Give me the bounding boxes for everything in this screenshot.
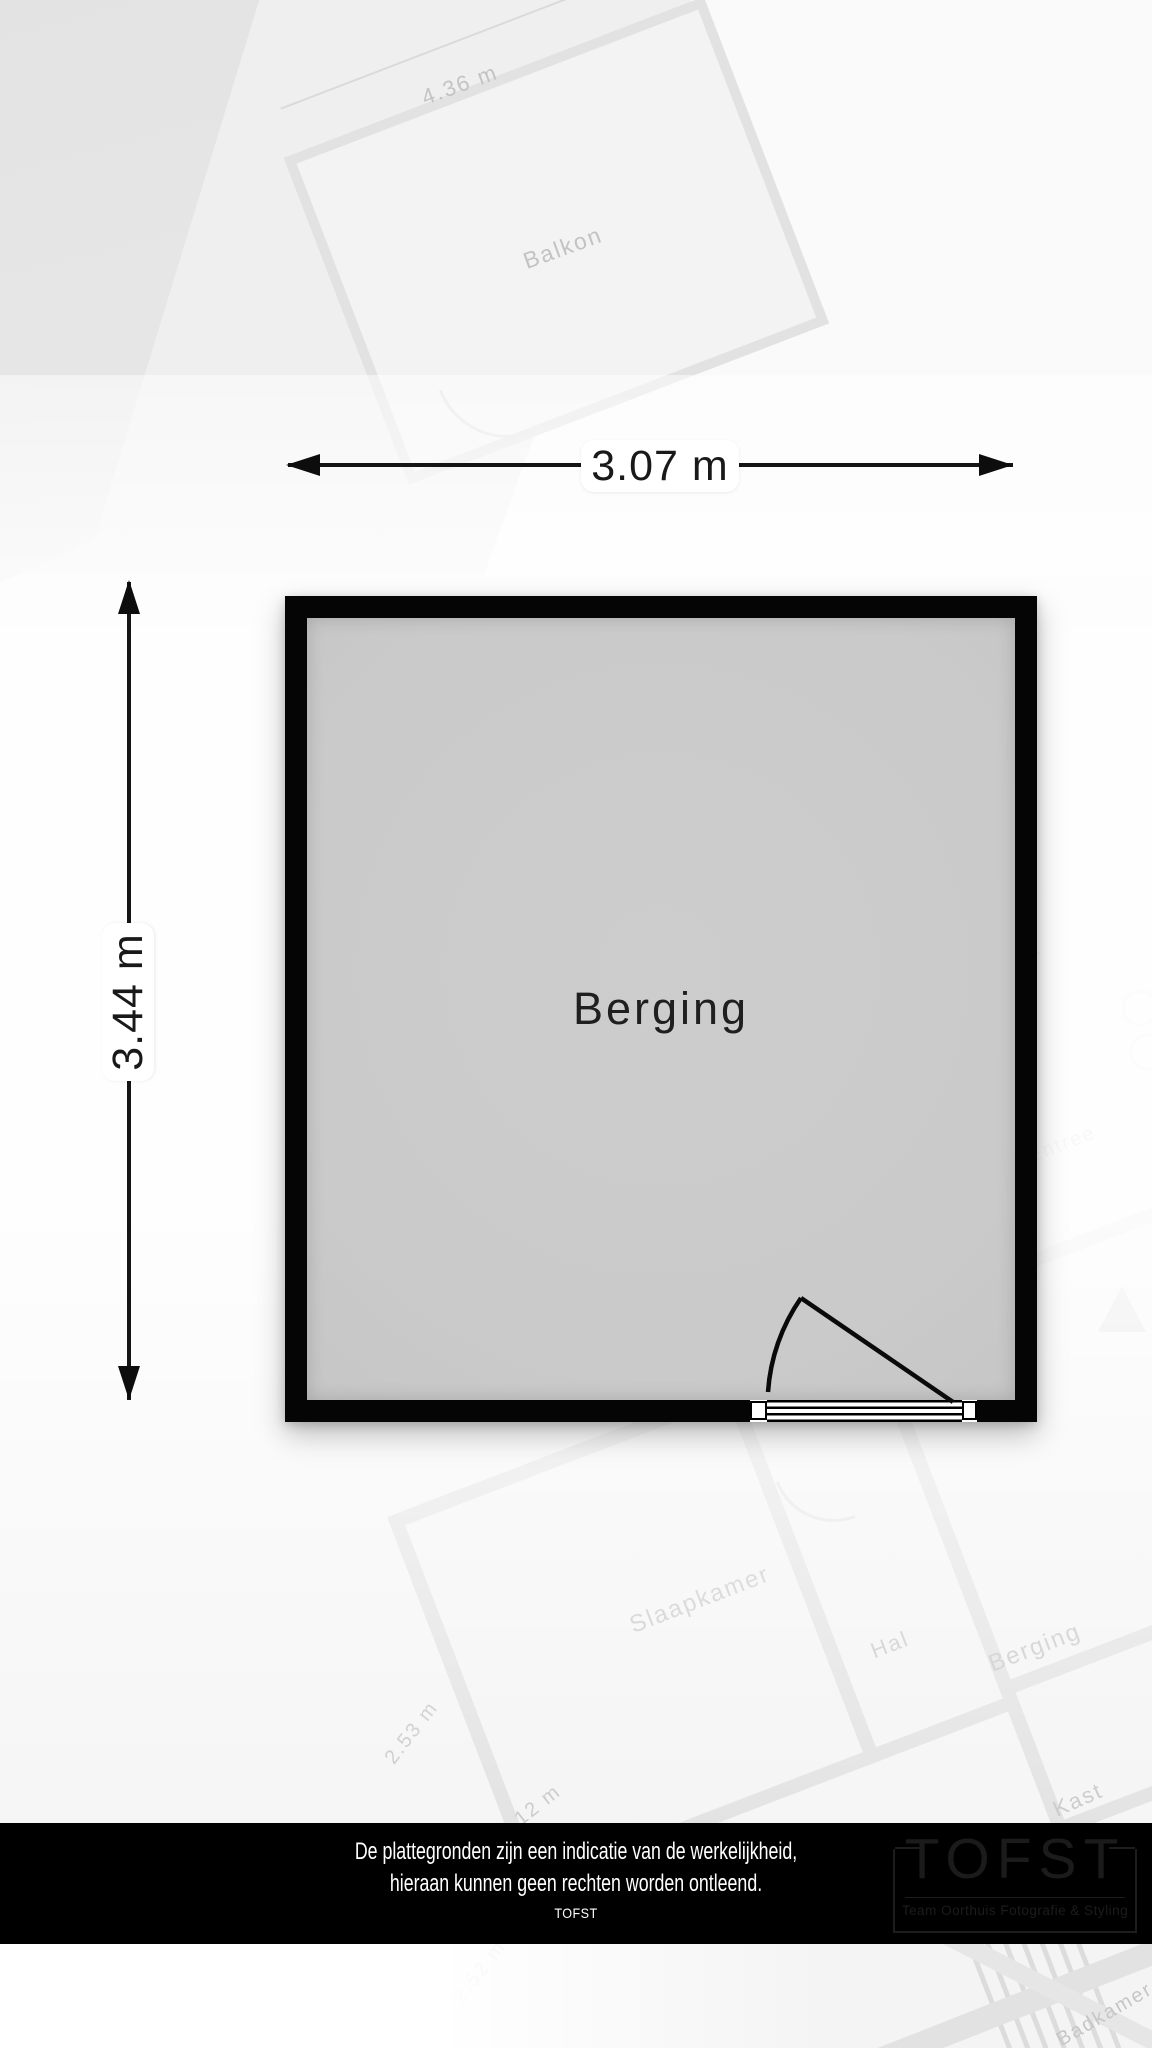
- disclaimer-line-2: hieraan kunnen geen rechten worden ontle…: [150, 1868, 1002, 1900]
- room-label: Berging: [573, 983, 749, 1035]
- door-jamb-left: [750, 1401, 767, 1420]
- height-dimension-label: 3.44 m: [102, 923, 154, 1081]
- arrow-down-icon: [118, 1366, 140, 1400]
- disclaimer-line-1: De plattegronden zijn een indicatie van …: [150, 1836, 1002, 1868]
- door-opening: [750, 1400, 977, 1422]
- door-threshold: [767, 1400, 962, 1422]
- logo-wordmark: TOFST: [893, 1829, 1137, 1889]
- logo-separator: [905, 1897, 1125, 1898]
- floorplan-page: 4.36 m Balkon HK Entree Slaapkamer Hal B…: [0, 0, 1152, 2048]
- logo-tagline: Team Oorthuis Fotografie & Styling: [893, 1903, 1137, 1918]
- room-berging: Berging: [285, 596, 1037, 1422]
- tofst-logo: TOFST Team Oorthuis Fotografie & Styling: [893, 1833, 1137, 1937]
- footer-bar: De plattegronden zijn een indicatie van …: [0, 1823, 1152, 1944]
- arrow-left-icon: [286, 454, 320, 476]
- width-dimension-label: 3.07 m: [581, 440, 739, 492]
- arrow-up-icon: [118, 580, 140, 614]
- arrow-right-icon: [979, 454, 1013, 476]
- door-jamb-right: [962, 1401, 977, 1420]
- background-bottom-wash: [0, 1944, 1152, 2048]
